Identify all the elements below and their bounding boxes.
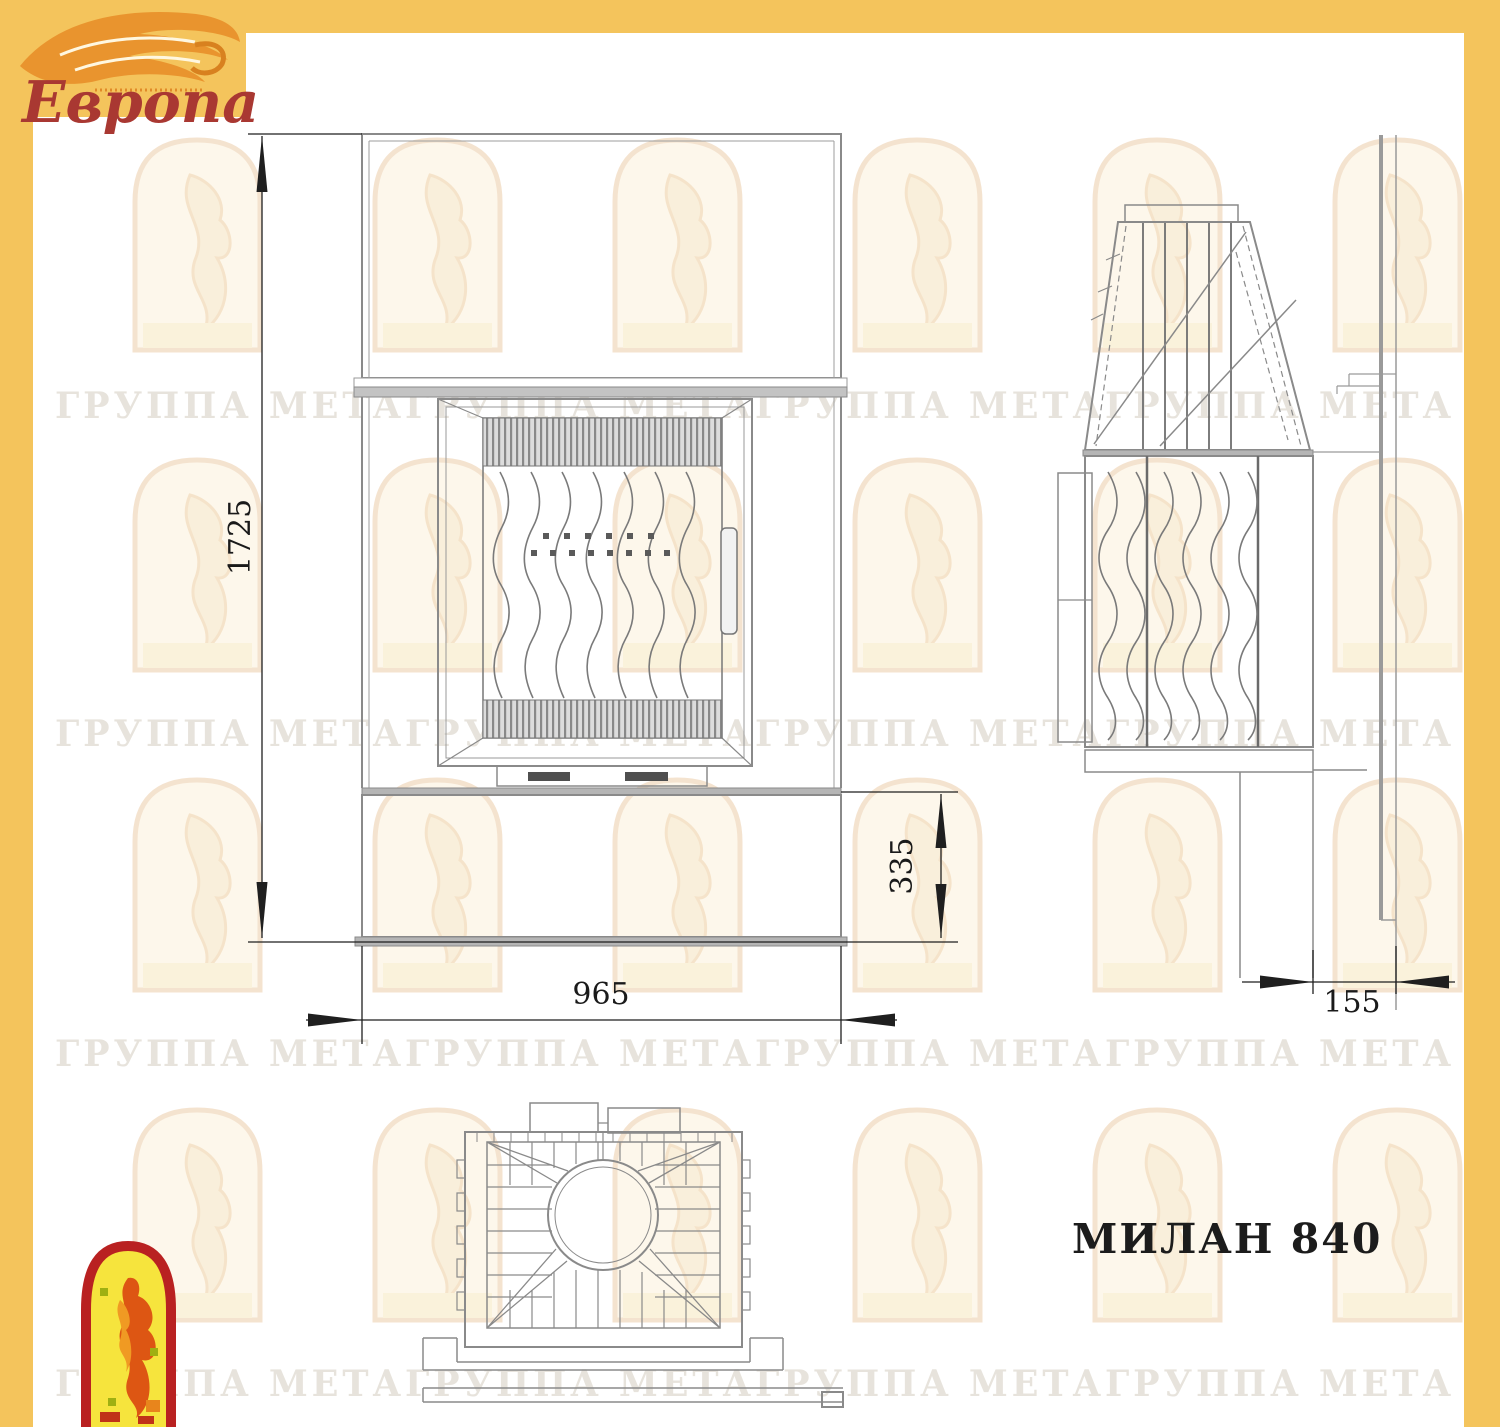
logo-wordmark: Европа: [20, 69, 259, 136]
side-pedestal: [1240, 772, 1313, 978]
frame-band-left: [0, 0, 33, 1427]
front-bottom-grille: [483, 700, 722, 738]
technical-drawing-canvas: ГРУППА МЕТАГРУППА МЕТАГРУППА МЕТАГРУППА …: [0, 0, 1500, 1427]
watermark-row: ГРУППА МЕТАГРУППА МЕТАГРУППА МЕТАГРУППА …: [55, 713, 1455, 755]
dim-height-total: 1725: [223, 499, 258, 575]
front-mantel-shelf: [354, 378, 847, 387]
dim-plinth-height: 335: [885, 837, 920, 894]
brand-emblem: [86, 1246, 171, 1427]
top-collar-left: [530, 1103, 598, 1132]
frame-band-right: [1464, 0, 1500, 1427]
dim-width: 965: [572, 977, 629, 1012]
front-top-grille: [483, 418, 722, 466]
side-door-edge: [1058, 473, 1092, 742]
door-handle: [721, 528, 737, 634]
drawing-sheet: ГРУППА МЕТАГРУППА МЕТАГРУППА МЕТАГРУППА …: [0, 0, 1500, 1427]
dim-wall-offset: 155: [1323, 985, 1380, 1020]
watermark-row: ГРУППА МЕТАГРУППА МЕТАГРУППА МЕТАГРУППА …: [55, 1033, 1455, 1075]
model-title: МИЛАН 840: [1072, 1215, 1382, 1263]
